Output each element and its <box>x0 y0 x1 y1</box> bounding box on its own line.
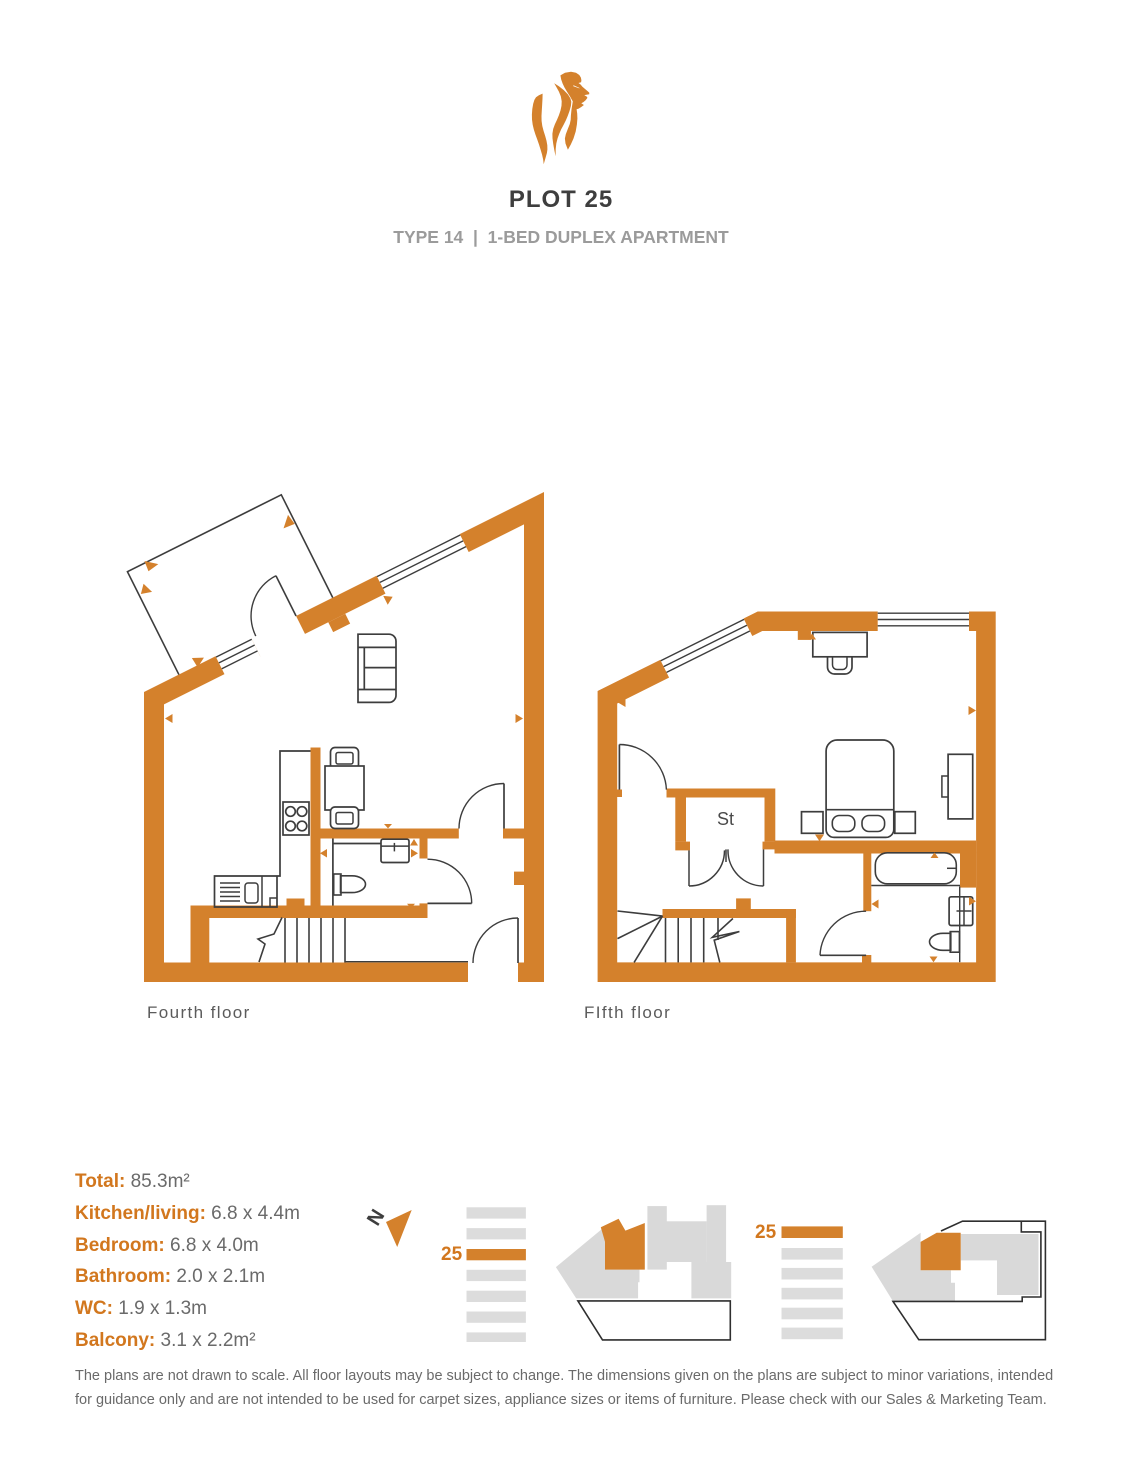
svg-text:N: N <box>363 1206 389 1230</box>
